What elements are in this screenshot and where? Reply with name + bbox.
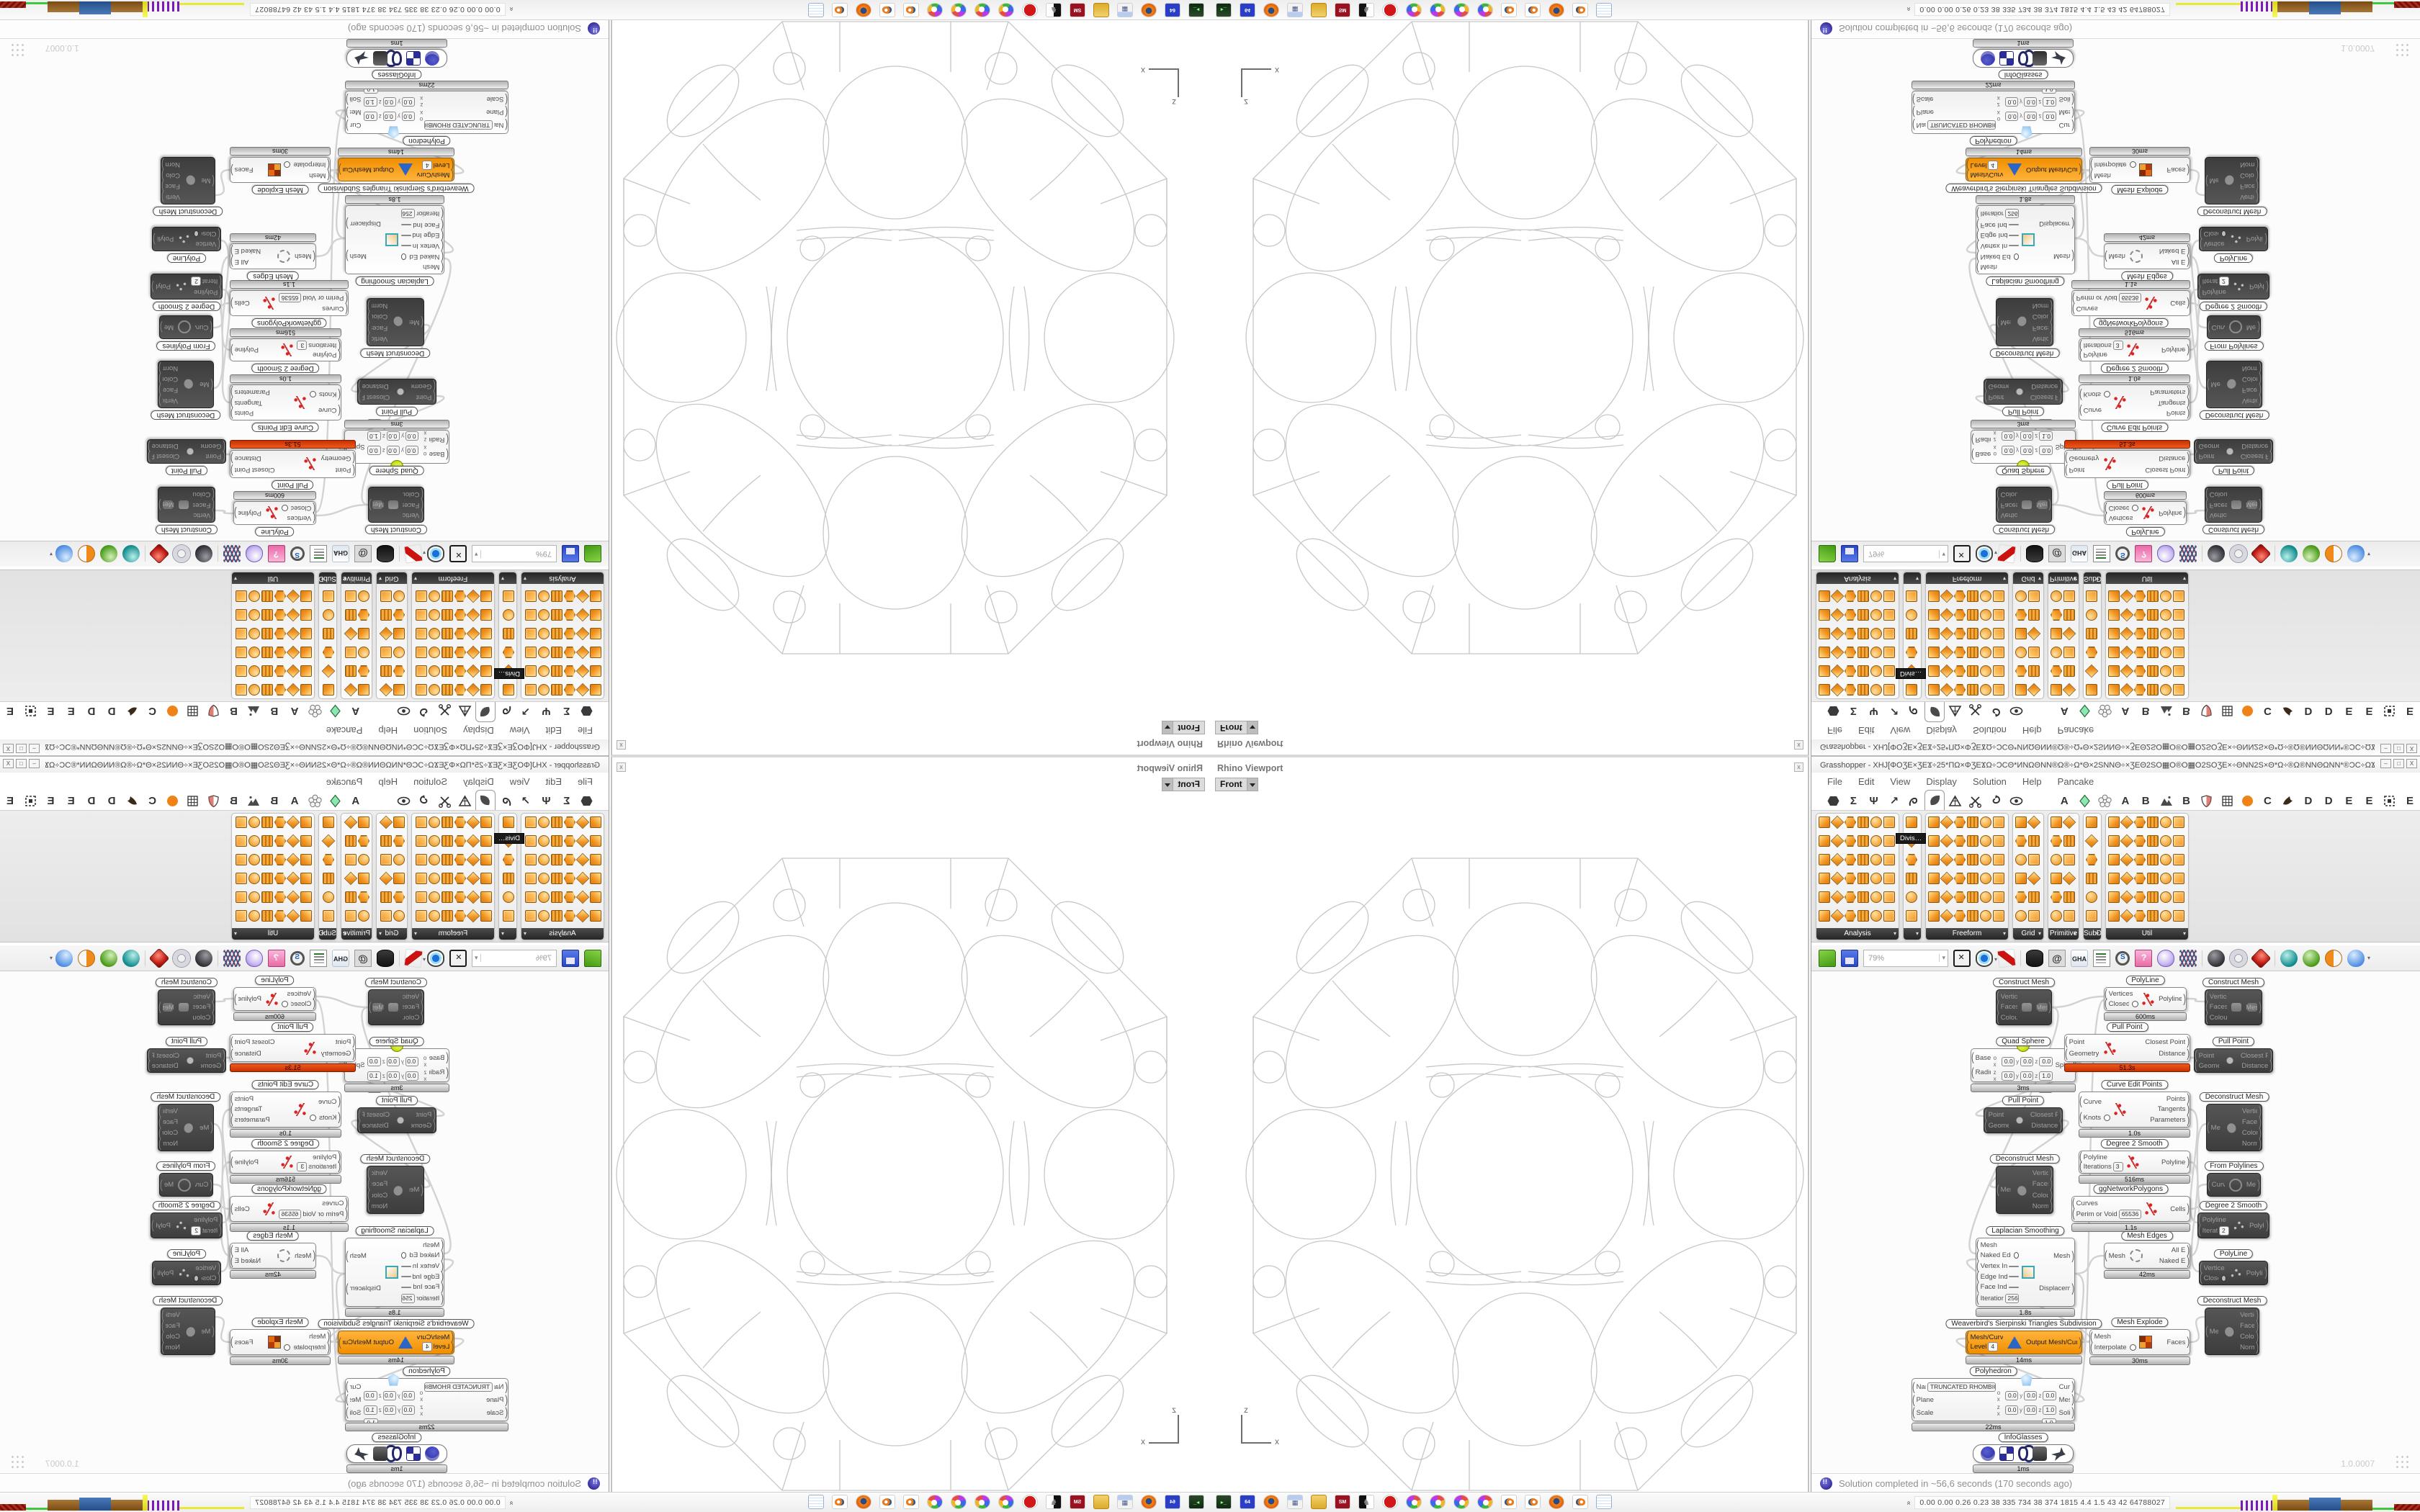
tray-overflow-icon[interactable]: » [508,7,516,12]
component-icon[interactable] [1928,590,1940,602]
tab-plugin-B[interactable]: B [2176,791,2196,810]
taskbar-app-chess[interactable] [1046,1495,1062,1509]
component-icon[interactable] [2147,873,2159,884]
gh-component-cep[interactable]: Curve Edit Points(Curve(KnotsPoints)Tang… [2079,1092,2190,1128]
gh-component-d2sR[interactable]: Degree 2 Smooth(Polyline(Iterations2Poly… [2197,274,2269,300]
maximize-button[interactable]: □ [16,744,27,753]
component-icon[interactable] [274,590,286,602]
gh-component-qs[interactable]: Quad Sphere(Base(Radiuso x0.0y0.0z0.0z x… [344,1048,449,1082]
component-icon[interactable] [480,684,492,696]
tab-plugin-D[interactable]: D [81,791,102,810]
component-label[interactable]: Quad Sphere [1996,1037,2051,1046]
tab-display[interactable] [394,791,414,810]
gh-component-plR[interactable]: PolyLine(Vertices(ClosedPolyline) [152,1261,221,1285]
component-icon[interactable] [261,910,273,922]
component-icon[interactable] [1831,627,1845,641]
component-icon[interactable] [345,910,357,922]
component-icon[interactable] [1845,647,1856,658]
component-icon[interactable] [393,891,405,903]
component-icon[interactable] [2027,627,2041,641]
component-icon[interactable] [236,609,247,621]
component-icon[interactable] [287,665,300,678]
component-icon[interactable] [467,891,480,904]
component-icon[interactable] [551,665,563,677]
component-body[interactable]: (CurvesMesh) [159,1173,213,1197]
custom-preview-icon[interactable] [2325,950,2342,967]
preview-settings-icon[interactable] [2347,546,2365,563]
sketch-pen-icon[interactable] [1996,948,2016,968]
component-icon[interactable] [429,647,440,658]
component-icon[interactable] [393,684,405,696]
menu-pancake[interactable]: Pancake [326,776,363,787]
component-icon[interactable] [1954,835,1966,847]
document-icon[interactable] [2093,950,2110,967]
gh-component-ig[interactable]: InfoGlasses1ms [346,1444,447,1463]
component-icon[interactable] [538,628,550,639]
component-icon[interactable] [2108,590,2120,602]
gh-canvas[interactable]: 1.0.0007 Construct Mesh(Vertices(Faces(C… [0,39,609,541]
taskbar-app-terminal[interactable] [1216,1495,1232,1509]
component-icon[interactable] [1819,590,1830,602]
component-icon[interactable] [1928,835,1940,847]
tab-plugin-D[interactable]: D [2318,702,2339,721]
component-label[interactable]: Degree 2 Smooth [2100,364,2168,373]
component-icon[interactable] [393,609,405,621]
tab-curve[interactable] [1904,791,1924,810]
ribbon-group-label[interactable]: Analysis [521,572,604,584]
component-icon[interactable] [274,628,286,639]
component-icon[interactable] [300,590,312,602]
component-body[interactable]: (MeshVertices)Faces)Colours)Normals) [367,1166,424,1214]
gh-component-mx[interactable]: Mesh Explode(Mesh(InterpolateFaces)30ms [230,1329,331,1355]
gh-component-d2sM[interactable]: Degree 2 Smooth(Polyline(Iterations3Poly… [2079,1151,2190,1174]
component-icon[interactable] [429,891,440,903]
component-body[interactable]: (Point(GeometryClosest Point)Distance) [357,1107,436,1133]
component-label[interactable]: Curve Edit Points [252,423,319,432]
component-icon[interactable] [248,854,260,865]
donut-icon[interactable] [2230,546,2247,563]
component-body[interactable]: (Polyline(Iterations2Polyline) [2197,1212,2269,1238]
component-icon[interactable] [1940,683,1954,697]
component-icon[interactable] [590,910,601,922]
tab-mesh[interactable] [1945,791,1965,810]
minimize-button[interactable]: – [29,744,40,753]
component-icon[interactable] [429,590,440,602]
taskbar-app-firefox[interactable] [1141,3,1157,17]
component-icon[interactable] [1870,684,1882,696]
taskbar-app-blender[interactable] [1525,3,1541,17]
component-label[interactable]: Deconstruct Mesh [361,348,431,358]
taskbar-app-palette[interactable] [927,1495,943,1509]
component-body[interactable] [346,1444,447,1463]
gh-component-ph[interactable]: Polyhedron(NameTRUNCATED RHOMBICUBOCTAHE… [1912,91,2075,134]
component-icon[interactable] [261,609,273,621]
component-icon[interactable] [1906,628,1917,639]
menu-edit[interactable]: Edit [1858,776,1874,787]
component-label[interactable]: Construct Mesh [365,978,427,987]
component-icon[interactable] [525,628,537,639]
component-icon[interactable] [1845,590,1856,602]
component-icon[interactable] [2120,909,2134,923]
component-icon[interactable] [248,590,260,602]
component-icon[interactable] [2028,910,2040,922]
taskbar-app-smred[interactable] [1070,3,1085,17]
component-icon[interactable] [2015,854,2027,865]
component-icon[interactable] [1845,835,1856,847]
component-icon[interactable] [2051,609,2062,621]
tab-plugin-A[interactable]: A [284,791,305,810]
component-icon[interactable] [480,835,492,847]
component-icon[interactable] [416,628,427,639]
component-icon[interactable] [358,684,369,696]
menu-display[interactable]: Display [1926,726,1957,737]
component-icon[interactable] [1831,872,1845,886]
component-body[interactable]: (Curves(Perim or Void65536Cells) [2071,290,2190,316]
component-icon[interactable] [248,684,260,696]
taskbar-app-blender[interactable] [1572,3,1588,17]
component-icon[interactable] [416,590,427,602]
component-icon[interactable] [429,854,440,865]
component-icon[interactable] [1980,684,1991,696]
tab-maths[interactable]: Σ [557,791,577,810]
component-icon[interactable] [1940,853,1954,867]
component-icon[interactable] [287,816,300,829]
tab-plugin-E[interactable]: E [2359,791,2379,810]
gh-component-d2sR[interactable]: Degree 2 Smooth(Polyline(Iterations2Poly… [151,274,223,300]
component-icon[interactable] [538,590,550,602]
component-icon[interactable] [1906,854,1917,865]
component-label[interactable]: Degree 2 Smooth [153,1201,220,1210]
component-body[interactable]: (Point(GeometryClosest Point)Distance) [147,439,226,464]
gh-component-ggn[interactable]: ggNetworkPolygons(Curves(Perim or Void65… [2071,1196,2190,1222]
ribbon-group-label[interactable]: Analysis [1816,572,1899,584]
component-icon[interactable] [248,873,260,884]
menu-file[interactable]: File [578,776,593,787]
component-icon[interactable] [2063,872,2076,886]
component-body[interactable]: (Point(GeometryClosest Point)Distance) [1984,379,2063,405]
component-icon[interactable] [1980,873,1991,884]
component-icon[interactable] [1831,891,1845,904]
component-icon[interactable] [2120,891,2134,904]
shaded-preview-icon[interactable] [2303,546,2320,563]
component-icon[interactable] [274,835,286,847]
component-label[interactable]: Pull Point [272,1022,313,1032]
taskbar-app-floppy64[interactable] [1240,3,1255,17]
taskbar-app-palette[interactable] [1430,1495,1446,1509]
component-icon[interactable] [416,816,427,828]
tab-plugin-shield[interactable] [2197,791,2217,810]
component-icon[interactable] [1870,891,1882,903]
component-icon[interactable] [2173,609,2184,621]
search-icon[interactable] [2115,951,2130,966]
component-icon[interactable] [590,647,601,658]
component-icon[interactable] [2015,910,2027,922]
taskbar-app-blender[interactable] [1525,1495,1541,1509]
component-icon[interactable] [454,816,466,828]
tab-plugin-A[interactable]: A [284,702,305,721]
tab-plugin-grid-dashed[interactable] [2380,791,2400,810]
component-icon[interactable] [503,816,514,828]
component-icon[interactable] [525,910,537,922]
component-icon[interactable] [454,684,466,696]
menu-help[interactable]: Help [378,726,398,737]
preview-settings-icon[interactable] [55,950,73,967]
gh-component-cmR[interactable]: Construct Mesh(Vertices(Faces(ColoursMes… [158,487,215,523]
tab-plugin-diamond-green[interactable] [2074,791,2094,810]
component-icon[interactable] [467,665,480,678]
gh-component-ppM[interactable]: Pull Point(Point(GeometryClosest Point)D… [230,450,356,478]
component-icon[interactable] [1857,910,1869,922]
component-icon[interactable] [1954,684,1966,696]
taskbar-app-firefox[interactable] [1263,1495,1279,1509]
dna-icon[interactable] [2179,546,2197,563]
tab-plugin-diamond-green[interactable] [2074,702,2094,721]
taskbar-app-blender[interactable] [879,3,895,17]
component-icon[interactable] [2108,910,2120,922]
component-icon[interactable] [1845,684,1856,696]
tab-plugin-D[interactable]: D [2318,791,2339,810]
component-icon[interactable] [1928,910,1940,922]
component-icon[interactable] [380,872,393,886]
jet-icon[interactable] [2051,1446,2066,1461]
gh-component-cmL[interactable]: Construct Mesh(Vertices(Faces(ColoursMes… [368,487,424,523]
component-body[interactable]: (Vertices(ClosedPolyline) [2104,987,2187,1011]
package-icon[interactable] [268,546,285,563]
component-icon[interactable] [2108,873,2120,884]
gh-component-cmL[interactable]: Construct Mesh(Vertices(Faces(ColoursMes… [1996,989,2052,1025]
component-icon[interactable] [467,646,480,660]
gh-component-ppR[interactable]: Pull Point(Point(GeometryClosest Point)D… [2194,1048,2273,1073]
component-icon[interactable] [2134,684,2146,696]
component-icon[interactable] [525,609,537,621]
gh-component-ppM[interactable]: Pull Point(Point(GeometryClosest Point)D… [2064,1034,2190,1062]
document-icon[interactable] [2093,546,2110,563]
gh-component-mx[interactable]: Mesh Explode(Mesh(InterpolateFaces)30ms [2089,1329,2190,1355]
taskbar-app-smred[interactable] [1335,3,1350,17]
gh-component-plM[interactable]: PolyLine(Vertices(ClosedPolyline)600ms [233,501,316,525]
preview-off-icon[interactable] [2208,546,2225,563]
gh-component-dmR[interactable]: Deconstruct Mesh(MeshVertices)Faces)Colo… [2206,1104,2262,1151]
at-icon[interactable] [2048,950,2066,967]
component-body[interactable]: (NameTRUNCATED RHOMBICUBOCTAHEDRON(Plane… [1912,1378,2075,1421]
tab-maths[interactable]: Σ [1843,702,1863,721]
component-body[interactable] [1973,49,2074,68]
component-icon[interactable] [1819,609,1830,621]
menu-display[interactable]: Display [463,726,494,737]
component-label[interactable]: Weaverbird's Sierpinski Triangles Subdiv… [1945,1319,2102,1328]
component-icon[interactable] [236,910,247,922]
gem-icon[interactable] [149,948,170,968]
component-icon[interactable] [1928,628,1940,639]
ribbon-group-label[interactable]: Analysis [1816,928,1899,940]
component-icon[interactable] [261,647,273,658]
taskbar-app-blender[interactable] [879,1495,895,1509]
component-label[interactable]: Pull Point [272,480,313,490]
taskbar-app-folder[interactable] [1311,1495,1327,1509]
taskbar-app-chess[interactable] [1046,3,1062,17]
component-label[interactable]: Quad Sphere [369,466,424,475]
component-icon[interactable] [287,590,300,603]
component-label[interactable]: Curve Edit Points [2101,423,2168,432]
wireframe-preview-icon[interactable] [2280,950,2298,967]
component-icon[interactable] [2051,684,2062,696]
component-icon[interactable] [525,854,537,865]
ribbon-group-label[interactable]: Util [2106,928,2188,940]
component-label[interactable]: Mesh Explode [2111,185,2168,194]
component-icon[interactable] [358,590,369,602]
component-icon[interactable] [1845,609,1856,621]
component-icon[interactable] [416,854,427,865]
component-icon[interactable] [2015,665,2027,677]
taskbar-app-calc[interactable] [1117,3,1133,17]
taskbar-app-calc[interactable] [1117,1495,1133,1509]
gh-component-ppL[interactable]: Pull Point(Point(GeometryClosest Point)D… [357,1107,436,1133]
taskbar-app-notepad[interactable] [1596,1495,1612,1509]
tab-plugin-B[interactable]: B [223,702,243,721]
taskbar-app-notepad[interactable] [1596,3,1612,17]
gh-component-wb[interactable]: Weaverbird's Sierpinski Triangles Subdiv… [1966,1331,2082,1354]
component-icon[interactable] [1906,816,1917,828]
component-icon[interactable] [525,647,537,658]
component-icon[interactable] [538,684,550,696]
tab-intersect[interactable] [434,791,454,810]
component-icon[interactable] [1993,628,2004,639]
component-icon[interactable] [1993,854,2004,865]
component-body[interactable]: (Vertices(ClosedPolyline) [152,1261,221,1285]
component-icon[interactable] [590,590,601,602]
component-label[interactable]: Pull Point [2106,480,2148,490]
ribbon-group-label[interactable] [1904,928,1921,940]
component-icon[interactable] [442,816,453,828]
component-label[interactable]: Pull Point [166,1037,207,1046]
jet-icon[interactable] [354,1446,369,1461]
component-icon[interactable] [1819,910,1830,922]
component-label[interactable]: Polyhedron [403,136,451,145]
component-icon[interactable] [344,627,358,641]
component-icon[interactable] [564,647,575,658]
tab-params[interactable] [577,702,597,721]
component-icon[interactable] [467,627,480,641]
component-icon[interactable] [1954,665,1966,677]
component-icon[interactable] [1980,891,1991,903]
component-label[interactable]: ggNetworkPolygons [2093,1184,2169,1194]
component-icon[interactable] [2051,910,2062,922]
component-body[interactable]: (Vertices(ClosedPolyline) [152,227,221,251]
preview-eye-icon[interactable] [1976,950,1993,967]
component-icon[interactable] [454,628,466,639]
component-icon[interactable] [393,665,405,677]
tray-overflow-icon[interactable]: » [508,1500,516,1505]
component-icon[interactable] [2015,816,2027,828]
component-icon[interactable] [2108,835,2120,847]
taskbar-app-terminal[interactable] [1216,3,1232,17]
menu-pancake[interactable]: Pancake [2058,726,2094,737]
component-body[interactable]: (Mesh(InterpolateFaces) [2089,157,2190,183]
gh-component-me[interactable]: Mesh Edges(MeshAll E)Naked E)42ms [230,243,316,269]
ribbon-group-label[interactable] [1904,572,1921,584]
gh-component-plM[interactable]: PolyLine(Vertices(ClosedPolyline)600ms [2104,501,2187,525]
gh-component-cep[interactable]: Curve Edit Points(Curve(KnotsPoints)Tang… [2079,384,2190,420]
component-icon[interactable] [2108,609,2120,621]
component-label[interactable]: Laplacian Smoothing [1986,276,2064,286]
component-icon[interactable] [564,665,575,677]
title-bar[interactable]: Grasshopper - XHJ[ΦΟƷΕ×ƷΕϪ÷25*ΠΩ×ΦƷΕϪΩ÷Ͻ… [1811,757,2420,773]
component-icon[interactable] [2015,684,2027,696]
component-icon[interactable] [2120,872,2134,886]
at-icon[interactable] [354,546,372,563]
component-icon[interactable] [1967,854,1978,865]
gh-component-dmL[interactable]: Deconstruct Mesh(MeshVertices)Faces)Colo… [367,298,424,346]
sketch-pen-icon[interactable] [403,948,423,968]
component-icon[interactable] [503,609,514,621]
gha-plugin-icon[interactable] [2071,950,2088,967]
gh-component-cep[interactable]: Curve Edit Points(Curve(KnotsPoints)Tang… [230,1092,341,1128]
component-icon[interactable] [1870,835,1882,847]
component-icon[interactable] [525,873,537,884]
taskbar-app-calc[interactable] [1287,1495,1303,1509]
component-body[interactable]: (Mesh/Curves(Level4Output Mesh/Curves) [1966,1331,2082,1354]
ribbon-group-label[interactable]: SubD [319,928,336,940]
jet-icon[interactable] [354,51,369,66]
component-icon[interactable] [2086,609,2097,621]
tab-params[interactable] [1823,702,1843,721]
component-icon[interactable] [2120,834,2134,848]
tab-plugin-E[interactable]: E [2400,702,2420,721]
component-label[interactable]: Deconstruct Mesh [153,1296,223,1305]
minimize-button[interactable]: – [2380,744,2391,753]
component-icon[interactable] [2160,609,2172,621]
component-icon[interactable] [274,891,286,903]
component-icon[interactable] [429,816,440,828]
ribbon-group-label[interactable]: Grid [2013,572,2043,584]
taskbar-app-blender[interactable] [1501,3,1517,17]
component-icon[interactable] [576,909,590,923]
tab-plugin-grid-dashed[interactable] [20,702,40,721]
component-icon[interactable] [1906,684,1917,696]
component-icon[interactable] [467,909,480,923]
zoom-extents-icon[interactable] [449,950,467,967]
tab-plugin-flower[interactable] [2095,702,2115,721]
tray-overflow-icon[interactable]: » [1904,7,1912,12]
component-icon[interactable] [564,816,575,828]
tab-curve[interactable] [496,702,516,721]
open-file-icon[interactable] [584,546,601,563]
component-icon[interactable] [236,590,247,602]
ribbon-group-label[interactable]: Util [232,572,314,584]
component-icon[interactable] [2134,609,2146,621]
component-icon[interactable] [380,665,392,677]
component-icon[interactable] [2120,646,2134,660]
component-icon[interactable] [287,834,300,848]
component-icon[interactable] [503,684,514,696]
component-icon[interactable] [1954,854,1966,865]
component-body[interactable]: (Mesh(InterpolateFaces) [2089,1329,2190,1355]
component-body[interactable]: (MeshAll E)Naked E) [230,1243,316,1269]
component-icon[interactable] [2108,628,2120,639]
tab-plugin-grid-dashed[interactable] [2380,702,2400,721]
component-icon[interactable] [236,665,247,677]
canvas-grip-icon[interactable] [9,42,25,58]
component-icon[interactable] [358,854,369,865]
component-label[interactable]: From Polylines [156,1161,215,1171]
component-icon[interactable] [393,647,405,658]
ribbon-group-label[interactable]: Grid [377,572,407,584]
component-icon[interactable] [551,628,563,639]
component-label[interactable]: From Polylines [2204,1161,2263,1171]
menu-help[interactable]: Help [2022,776,2042,787]
component-icon[interactable] [287,683,300,697]
tab-plugin-mountain[interactable] [244,791,264,810]
